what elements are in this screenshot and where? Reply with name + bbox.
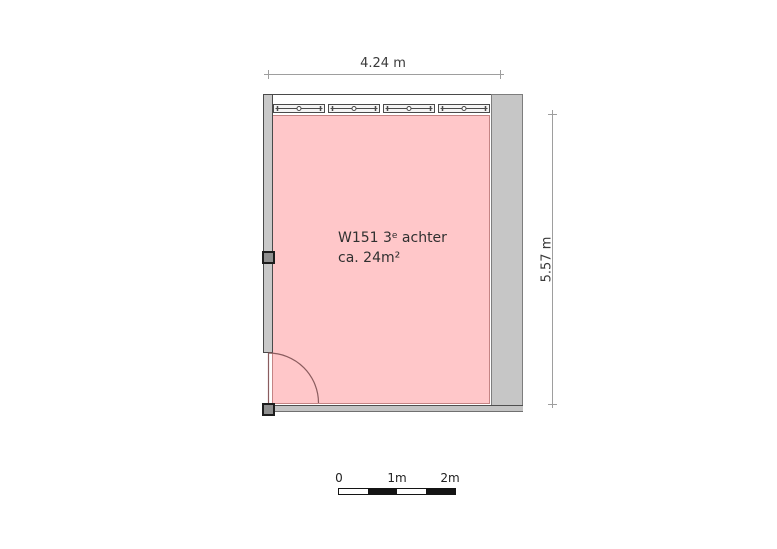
scale-bar [338,488,456,495]
room-label: W151 3e achter ca. 24m² [338,226,447,268]
column-post-top [262,251,275,264]
column-post-bottom [262,403,275,416]
door [269,353,319,403]
plan-linework [0,0,777,549]
scale-bar-segment [397,489,426,494]
room-label-line1: W151 3e achter [338,226,447,248]
floorplan-canvas: 4.24 m 5.57 m W151 3e achter [0,0,777,549]
scale-bar-segment [426,489,455,494]
scale-bar-segment [339,489,368,494]
scale-label-1m: 1m [382,471,412,485]
scale-label-0: 0 [324,471,354,485]
room-label-line2: ca. 24m² [338,248,447,268]
scale-label-2m: 2m [435,471,465,485]
window-segment [352,107,356,111]
window-segment [462,107,466,111]
dimension-line-height [548,110,557,408]
dimension-line-width [264,70,504,79]
window-segment [407,107,411,111]
window-segment [297,107,301,111]
door-swing-arc [269,353,319,403]
scale-bar-segment [368,489,397,494]
window-strip [274,105,490,113]
